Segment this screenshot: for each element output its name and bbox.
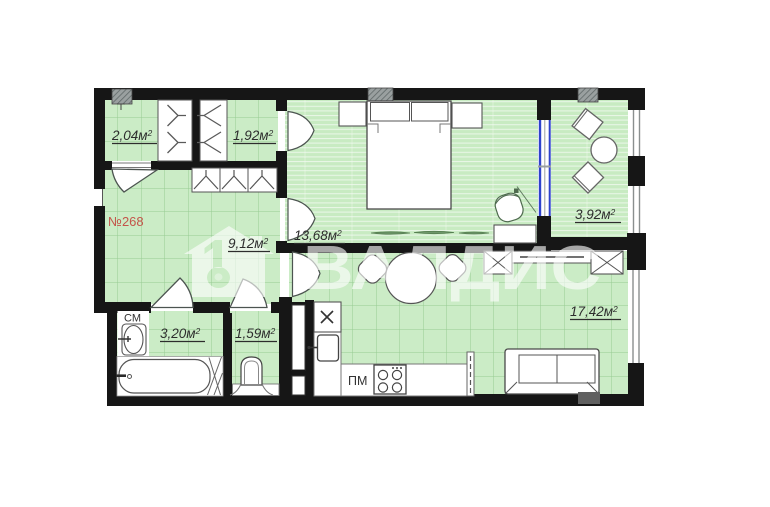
svg-text:ПМ: ПМ xyxy=(348,374,367,388)
svg-text:ВАЛДИС: ВАЛДИС xyxy=(303,234,601,303)
svg-text:3,20м2: 3,20м2 xyxy=(160,326,201,341)
svg-text:9,12м2: 9,12м2 xyxy=(228,236,269,251)
svg-text:3,92м2: 3,92м2 xyxy=(575,207,616,222)
svg-text:2,04м2: 2,04м2 xyxy=(111,128,153,143)
svg-text:13,68м2: 13,68м2 xyxy=(294,228,342,243)
svg-text:№268: №268 xyxy=(108,214,144,229)
svg-text:СМ: СМ xyxy=(124,313,141,325)
svg-text:1,92м2: 1,92м2 xyxy=(233,128,274,143)
svg-text:17,42м2: 17,42м2 xyxy=(570,304,618,319)
svg-text:1,59м2: 1,59м2 xyxy=(235,326,276,341)
